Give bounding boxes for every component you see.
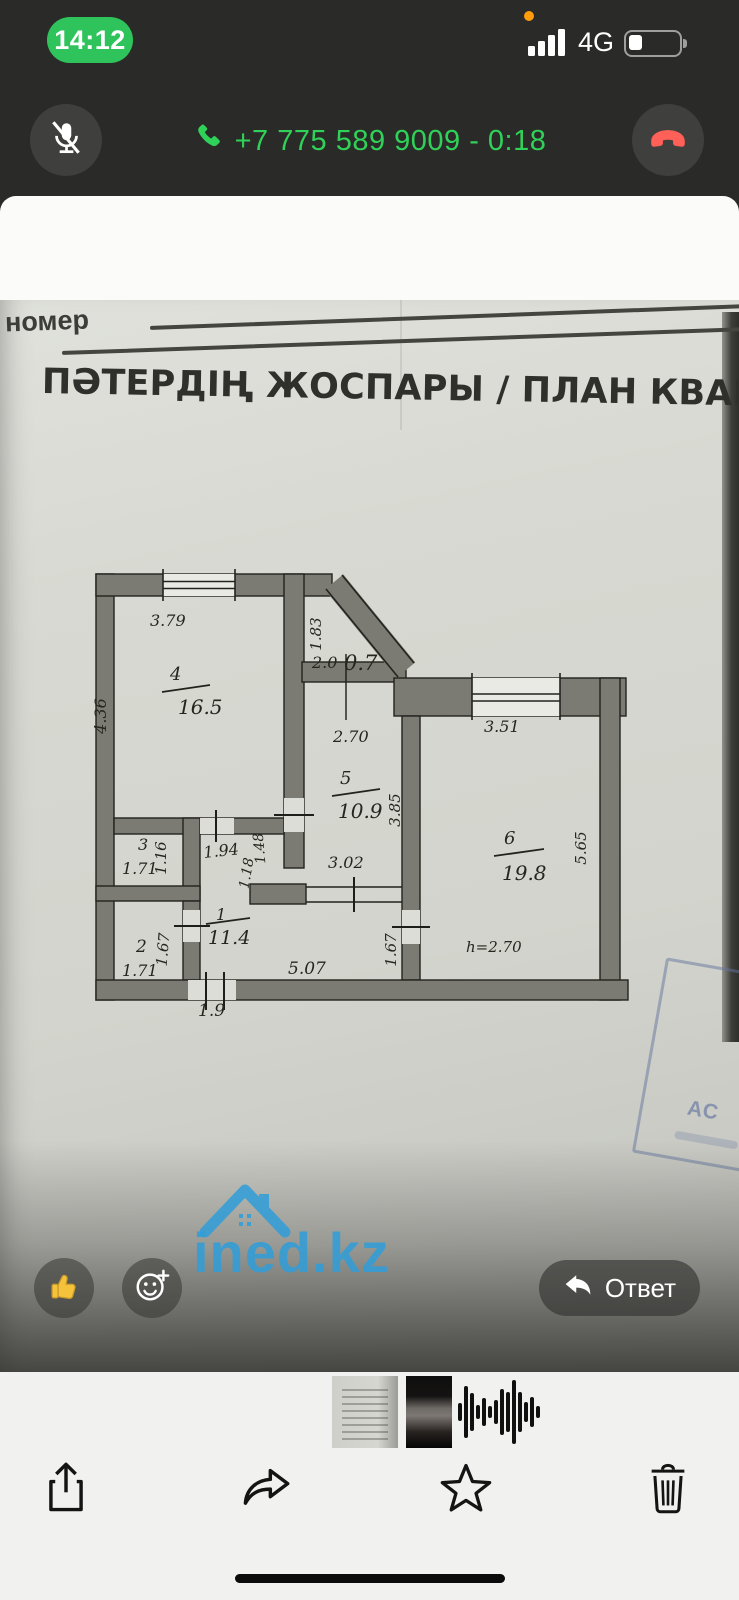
dim-label: 1.67	[153, 932, 174, 967]
status-time: 14:12	[54, 25, 126, 56]
height-note: h=2.70	[466, 938, 522, 956]
document-title: ПӘТЕРДІҢ ЖОСПАРЫ / ПЛАН КВАРТИ	[42, 362, 739, 415]
room-number: 1	[216, 905, 226, 924]
window	[163, 569, 560, 720]
dim-label: 1.83	[307, 617, 325, 650]
signal-bars-icon	[528, 29, 565, 56]
battery-icon	[624, 30, 682, 57]
thumbnail-photo[interactable]	[406, 1376, 452, 1448]
room-area: 16.5	[178, 695, 223, 719]
share-icon	[40, 1503, 92, 1520]
phone-icon	[193, 122, 223, 160]
dim-label: 4.36	[91, 698, 110, 735]
network-type: 4G	[578, 27, 614, 58]
voice-waveform[interactable]	[458, 1376, 536, 1448]
stamp-text: АС	[685, 1096, 720, 1125]
watermark-text: ined.kz	[193, 1220, 390, 1285]
dim-label: 3.79	[150, 611, 186, 630]
dim-label: 3.51	[484, 717, 520, 736]
floor-plan: 3.79 4.36 4 16.5 1.83 2.0 0.7 2.70 5 10.…	[88, 558, 633, 1028]
dim-label: 1.94	[202, 839, 239, 862]
dim-label: 2.0	[311, 653, 337, 672]
forward-arrow-icon	[240, 1503, 292, 1520]
paper-edge-shadow	[722, 312, 739, 1042]
reply-button[interactable]: Ответ	[539, 1260, 700, 1316]
dim-label: 5.07	[288, 959, 326, 979]
dim-label: 1.16	[152, 841, 170, 875]
smiley-plus-icon	[133, 1267, 171, 1310]
room-number: 4	[169, 664, 181, 685]
dim-label: 3.85	[386, 793, 404, 826]
room-area: 19.8	[502, 861, 547, 885]
microphone-in-use-dot	[524, 11, 534, 21]
phone-down-icon	[647, 117, 689, 164]
call-number-timer: +7 775 589 9009 - 0:18	[235, 125, 547, 158]
active-call-time-pill[interactable]: 14:12	[47, 17, 133, 63]
like-button[interactable]	[34, 1258, 94, 1318]
room-area: 10.9	[338, 799, 383, 823]
room-number: 2	[135, 937, 147, 957]
dim-label: 0.7	[344, 651, 378, 675]
dim-label: 1.9	[198, 1001, 225, 1021]
forward-button[interactable]	[240, 1460, 292, 1516]
dim-label: 1.67	[382, 933, 400, 967]
delete-button[interactable]	[644, 1460, 696, 1516]
reply-label: Ответ	[605, 1273, 676, 1304]
share-button[interactable]	[40, 1460, 92, 1516]
reply-arrow-icon	[563, 1272, 593, 1305]
photo-viewer[interactable]: номер ПӘТЕРДІҢ ЖОСПАРЫ / ПЛАН КВАРТИ	[0, 300, 739, 1372]
room-number: 6	[504, 828, 515, 849]
call-status: +7 775 589 9009 - 0:18	[0, 122, 739, 160]
dim-label: 3.02	[328, 853, 364, 872]
status-bar: 14:12 4G	[0, 0, 739, 75]
end-call-button[interactable]	[632, 104, 704, 176]
thumbnail-document[interactable]	[332, 1376, 398, 1448]
trash-icon	[644, 1503, 692, 1520]
call-banner: +7 775 589 9009 - 0:18	[0, 75, 739, 196]
room-area: 11.4	[208, 927, 250, 949]
bottom-bar	[0, 1372, 739, 1600]
star-icon	[440, 1503, 492, 1520]
room-number: 5	[340, 768, 351, 789]
favorite-button[interactable]	[440, 1460, 492, 1516]
thumbs-up-icon	[47, 1269, 81, 1308]
plan-walls	[96, 574, 628, 1000]
room-number: 3	[138, 835, 148, 854]
home-indicator[interactable]	[235, 1574, 505, 1583]
add-reaction-button[interactable]	[122, 1258, 182, 1318]
phone-screen: 14:12 4G	[0, 0, 739, 1600]
media-viewer-header: Вы 06.11.2025, 22:38	[0, 196, 739, 300]
dim-label: 5.65	[572, 831, 590, 864]
dim-label: 2.70	[332, 727, 369, 746]
form-field-label: номер	[4, 305, 89, 339]
form-underline	[150, 304, 739, 329]
